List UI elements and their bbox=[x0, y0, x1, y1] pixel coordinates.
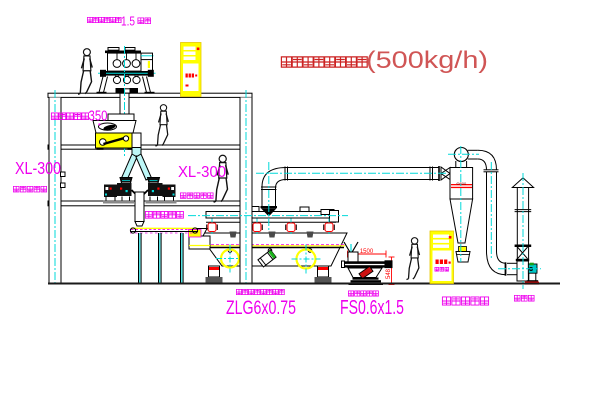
svg-text:XL-300: XL-300 bbox=[15, 158, 61, 178]
svg-text:ZLG6x0.75: ZLG6x0.75 bbox=[226, 298, 296, 319]
svg-text:XL-300: XL-300 bbox=[178, 164, 226, 181]
svg-text:Φ800: Φ800 bbox=[456, 181, 467, 186]
svg-text:548: 548 bbox=[386, 268, 392, 279]
svg-text:1.5: 1.5 bbox=[121, 14, 135, 29]
svg-text:(500kg/h): (500kg/h) bbox=[366, 47, 488, 74]
svg-text:FS0.6x1.5: FS0.6x1.5 bbox=[340, 297, 404, 319]
svg-text:350: 350 bbox=[89, 109, 108, 125]
svg-text:1500: 1500 bbox=[360, 249, 374, 255]
